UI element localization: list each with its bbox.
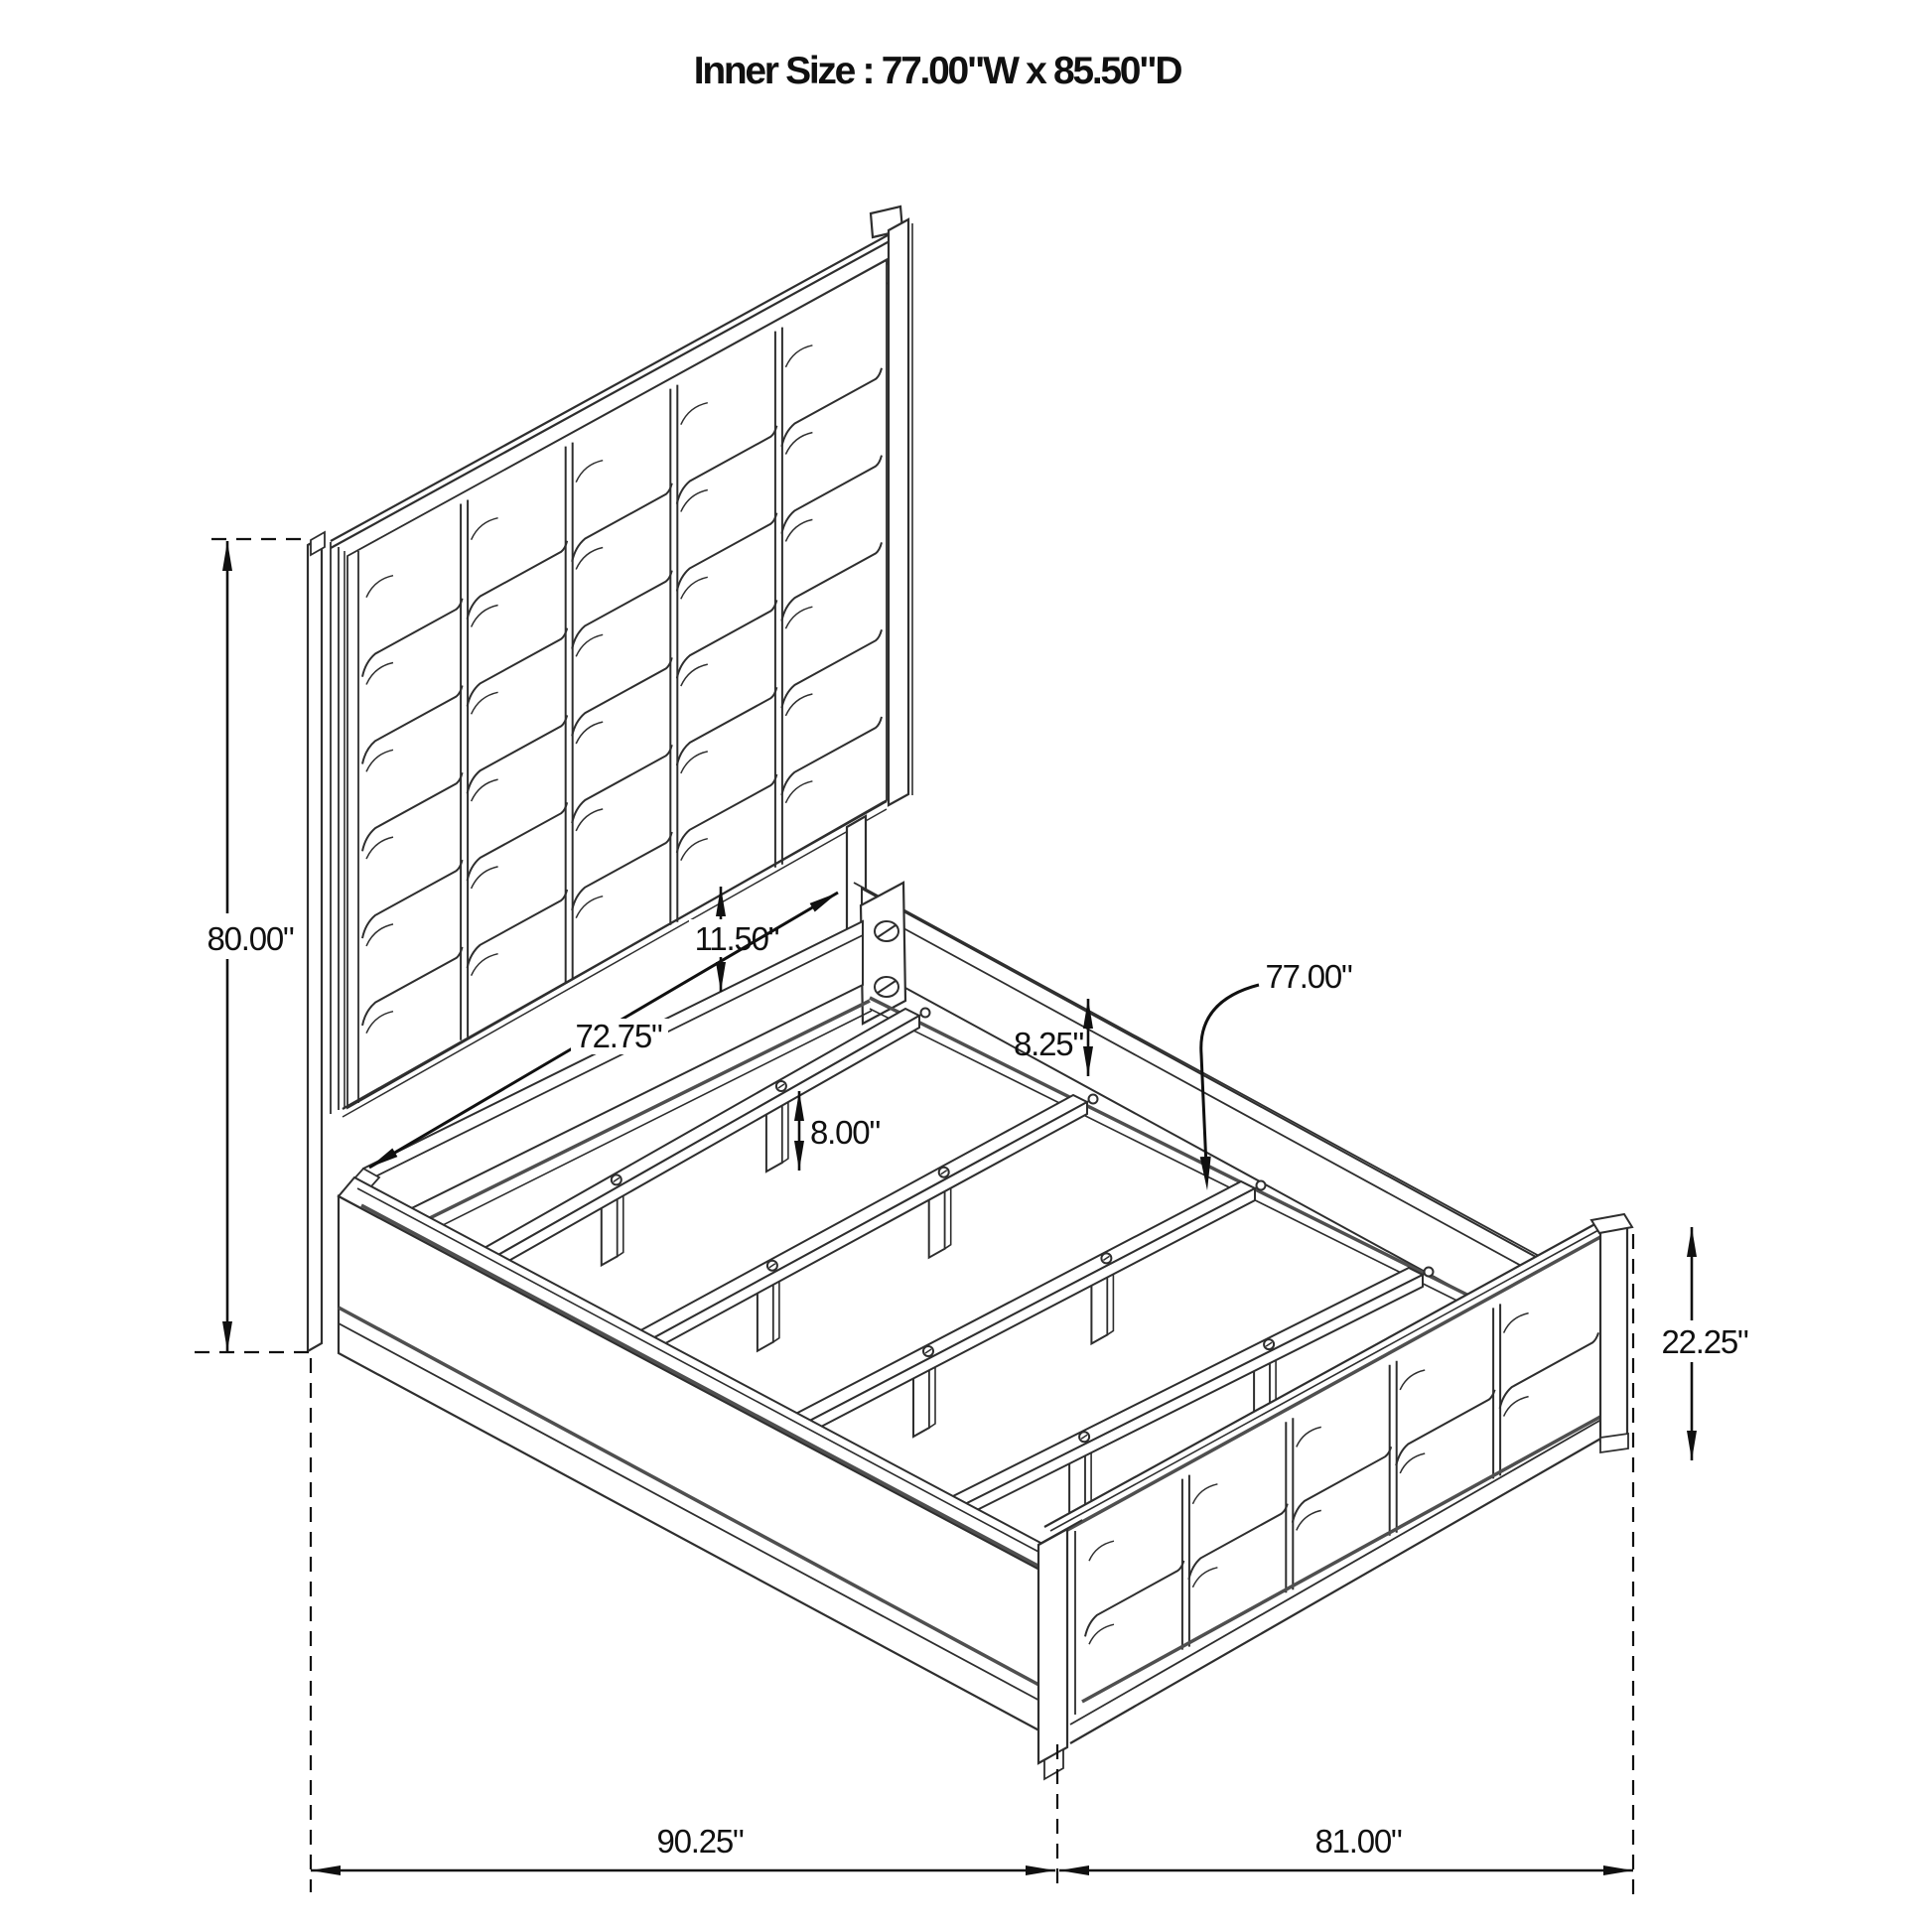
svg-text:8.25": 8.25" <box>1014 1026 1083 1062</box>
svg-text:Inner Size : 77.00"W x 85.50"D: Inner Size : 77.00"W x 85.50"D <box>694 50 1182 92</box>
svg-text:90.25": 90.25" <box>656 1823 744 1860</box>
svg-text:72.75": 72.75" <box>575 1018 662 1054</box>
svg-text:8.00": 8.00" <box>810 1114 880 1151</box>
svg-text:77.00": 77.00" <box>1265 958 1352 995</box>
svg-text:22.25": 22.25" <box>1661 1323 1748 1360</box>
svg-text:81.00": 81.00" <box>1314 1823 1402 1860</box>
svg-text:80.00": 80.00" <box>207 920 294 957</box>
